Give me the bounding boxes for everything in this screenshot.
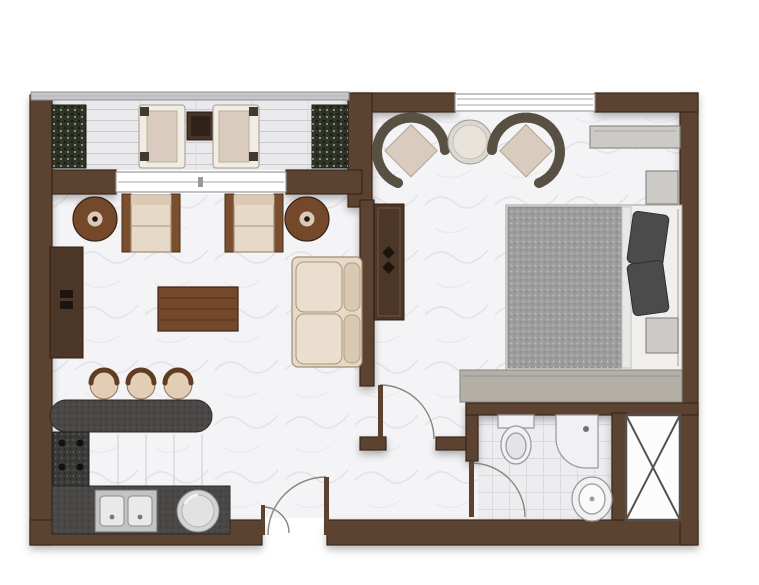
tv-console-handle [60,290,73,298]
toilet [498,415,534,464]
balcony-table-top [191,116,210,136]
entrance-door-leaf [324,477,329,535]
bedroom-door-leaf [378,385,383,439]
bar-stools [90,370,192,399]
entrance-threshold [262,518,327,542]
round-table [448,120,492,164]
wall-top-bedroom-right [595,93,698,112]
bar-counter-texture [50,400,212,432]
lounge-chair-right [213,105,259,168]
side-table-left [73,197,117,241]
bar-stool [164,370,192,399]
tv-console-handle-2 [60,301,73,309]
wall-balcony-bottom-right [286,170,362,194]
armchair-left [122,194,180,252]
entrance-side-leaf [261,505,265,535]
pillow [627,260,670,317]
planter-left-texture [52,105,86,168]
coffee-table [158,287,238,331]
wall-bathroom-top [466,403,698,415]
bedroom-window [455,94,595,111]
wall-bottom-right [327,520,698,545]
planter-right-texture [312,105,348,168]
wall-left [30,95,52,545]
armchair-right [225,194,283,252]
washer [177,490,219,532]
stove [53,432,89,486]
side-table-right [285,197,329,241]
lounge-chair-left [139,105,185,168]
sliding-door-divider [198,177,203,187]
bar-stool [127,370,155,399]
wall-hall-stub [436,437,468,450]
bed-blanket-texture [508,207,622,368]
wall-right [680,93,698,545]
pillow [627,211,670,268]
pillows [627,211,670,317]
service-shaft [626,415,680,520]
wall-shelf [590,126,680,148]
kitchen-sink [95,490,157,532]
wall-bath-shaft-divider [612,413,626,520]
nightstand-top [646,171,678,204]
bar-stool [90,370,118,399]
bathroom-door-leaf [469,461,474,517]
floor-plan [0,0,759,585]
sofa [292,257,362,367]
shower-basin [572,477,612,521]
nightstand-bottom [646,318,678,353]
dresser [460,370,682,402]
wardrobe [374,204,404,320]
wall-balcony-bottom-left [52,170,116,194]
